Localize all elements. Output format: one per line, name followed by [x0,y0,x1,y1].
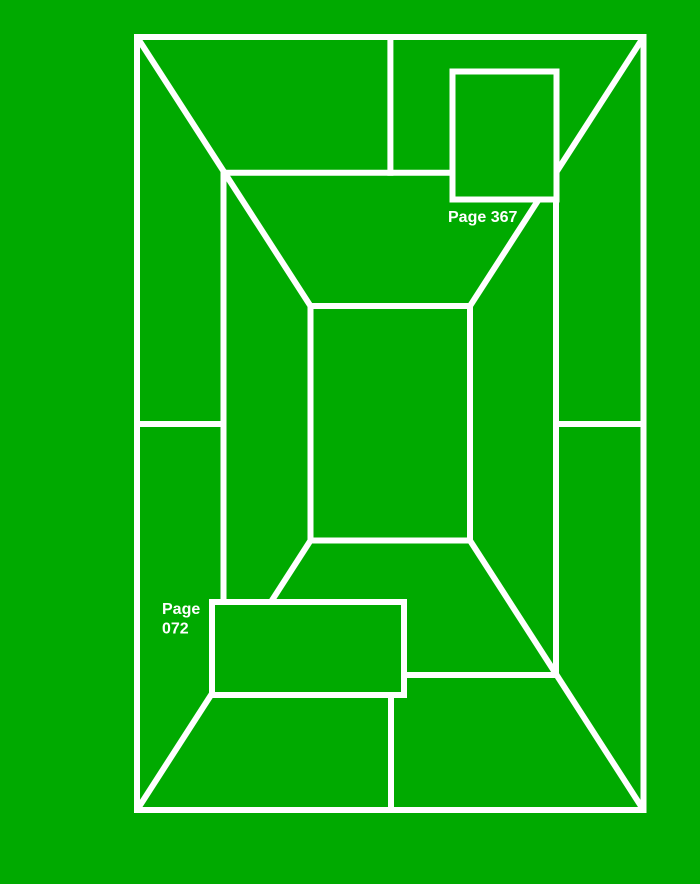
svg-text:Page: Page [162,601,200,618]
svg-text:072: 072 [162,621,189,638]
svg-text:Page 367: Page 367 [448,209,517,226]
